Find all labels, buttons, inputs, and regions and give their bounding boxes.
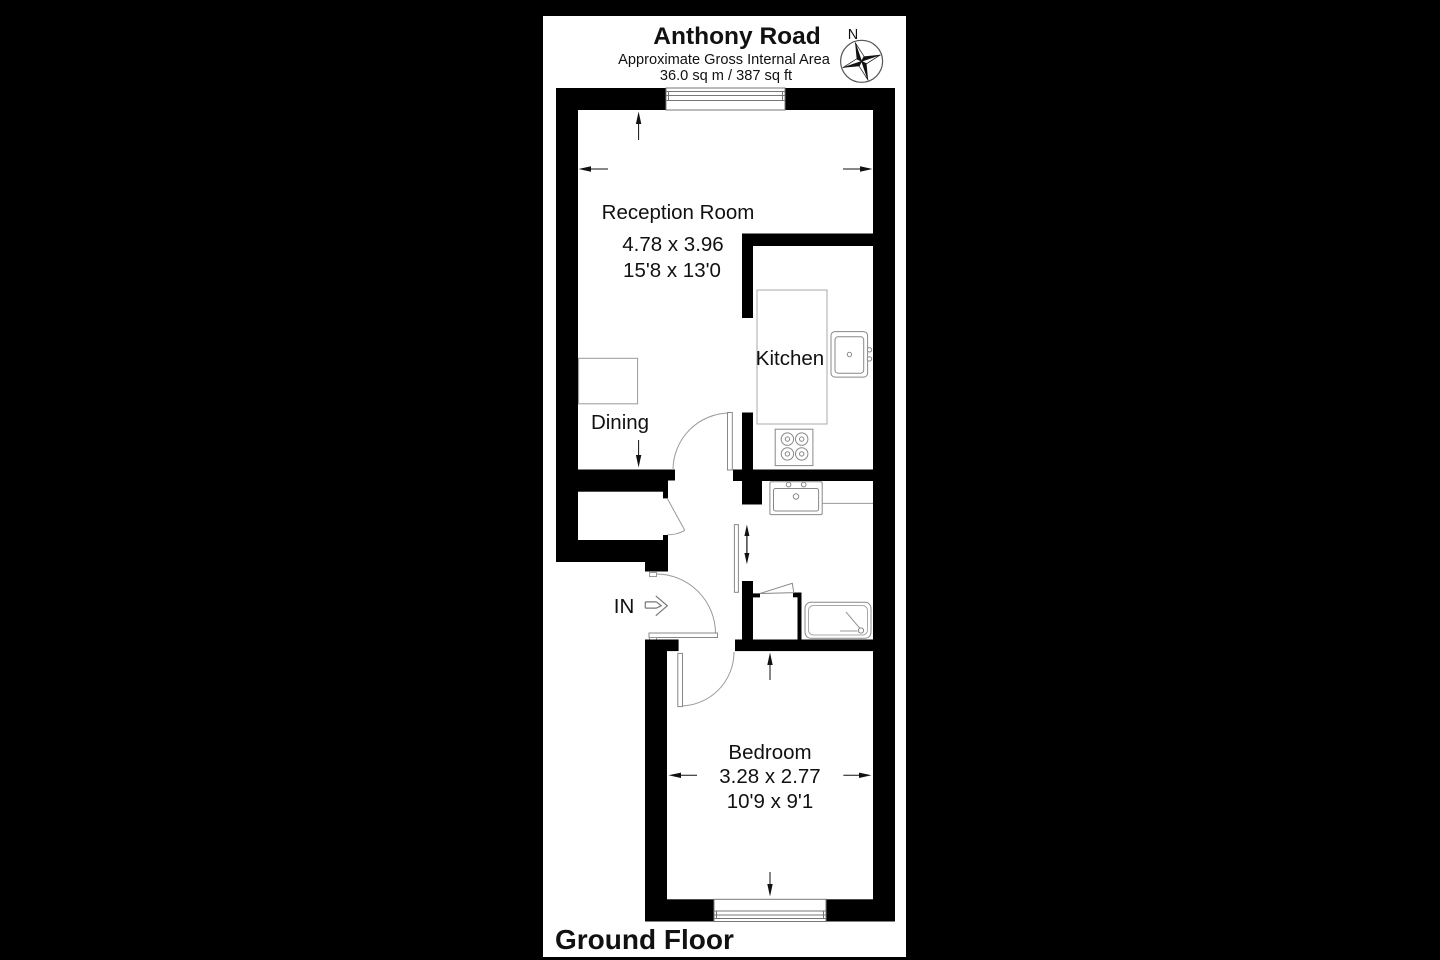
svg-text:Kitchen: Kitchen [756,347,824,370]
svg-text:IN: IN [614,595,635,618]
svg-text:Ground Floor: Ground Floor [555,924,734,955]
svg-text:15'8 x 13'0: 15'8 x 13'0 [623,259,721,282]
svg-text:Dining: Dining [591,411,649,434]
svg-text:36.0 sq m / 387 sq ft: 36.0 sq m / 387 sq ft [660,68,792,84]
svg-text:Anthony Road: Anthony Road [653,23,820,50]
svg-text:3.28 x 2.77: 3.28 x 2.77 [719,765,820,788]
svg-text:Bedroom: Bedroom [728,741,811,764]
svg-text:Reception Room: Reception Room [602,201,755,224]
svg-text:4.78 x 3.96: 4.78 x 3.96 [622,233,723,256]
svg-text:Approximate Gross Internal Are: Approximate Gross Internal Area [618,52,831,68]
svg-text:10'9 x 9'1: 10'9 x 9'1 [727,790,813,813]
